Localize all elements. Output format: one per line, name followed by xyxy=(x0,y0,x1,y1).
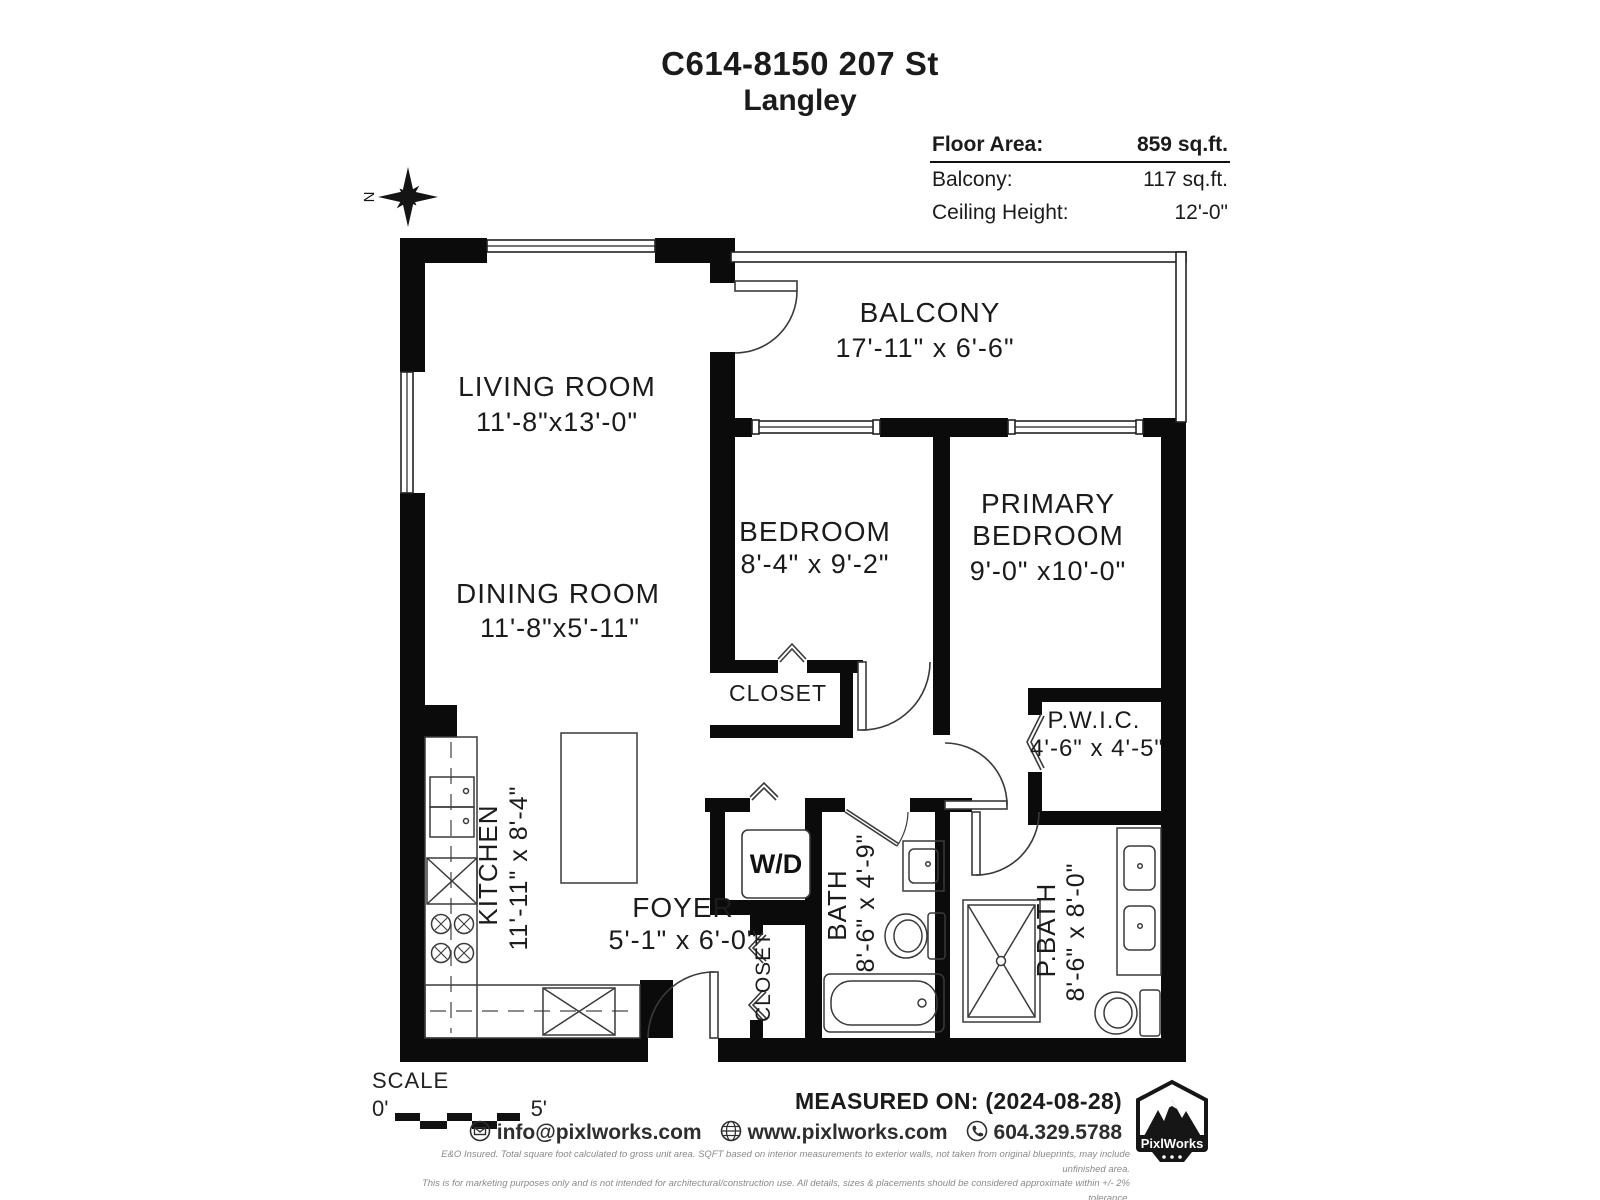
balcony-dims: 17'-11" x 6'-6" xyxy=(835,333,1014,363)
pbath-toilet-icon xyxy=(1095,990,1160,1036)
primary-bedroom-dims: 9'-0" x10'-0" xyxy=(970,556,1127,586)
pbath-dims: 8'-6" x 8'-0" xyxy=(1062,863,1090,1002)
window-left-living xyxy=(401,372,413,493)
logo-text: PixlWorks xyxy=(1141,1136,1204,1151)
windows xyxy=(401,240,1143,493)
shower-icon xyxy=(963,900,1040,1022)
foyer-label: FOYER xyxy=(632,892,733,923)
bathtub-icon xyxy=(824,974,944,1032)
bedroom-closet-label: CLOSET xyxy=(729,680,827,706)
wd-bifold xyxy=(750,783,778,800)
primary-bedroom-label-1: PRIMARY xyxy=(981,488,1115,519)
pwic-label: P.W.I.C. xyxy=(1048,707,1141,734)
window-bedroom xyxy=(752,420,880,434)
living-room-dims: 11'-8"x13'-0" xyxy=(476,407,638,437)
measured-on: MEASURED ON: (2024-08-28) xyxy=(222,1088,1122,1115)
contact-phone: 604.329.5788 xyxy=(966,1120,1122,1145)
bedroom-door xyxy=(858,662,930,730)
contact-website: www.pixlworks.com xyxy=(720,1120,948,1145)
washer-dryer-icon: W/D xyxy=(742,830,810,898)
wd-label: W/D xyxy=(750,849,802,879)
kitchen-dims: 11'-11" x 8'-4" xyxy=(505,785,533,950)
bedroom-closet-bifold xyxy=(778,644,806,662)
sink-icon xyxy=(427,858,477,904)
fridge-icon xyxy=(430,777,474,837)
globe-icon xyxy=(720,1120,742,1142)
balcony-door xyxy=(735,281,797,353)
primary-bedroom-label-2: BEDROOM xyxy=(972,520,1124,551)
pwic-dims: 4'-6" x 4'-5" xyxy=(1030,735,1164,762)
email-icon xyxy=(469,1120,491,1142)
phone-icon xyxy=(966,1120,988,1142)
dining-room-dims: 11'-8"x5'-11" xyxy=(480,613,640,643)
balcony-label: BALCONY xyxy=(860,297,1001,328)
disclaimer-line-1: E&O Insured. Total square foot calculate… xyxy=(410,1148,1130,1177)
dishwasher-icon xyxy=(543,988,615,1035)
window-primary-bedroom xyxy=(1008,420,1143,434)
kitchen-label: KITCHEN xyxy=(473,804,503,925)
foyer-dims: 5'-1" x 6'-0" xyxy=(608,925,757,955)
disclaimer-line-2: This is for marketing purposes only and … xyxy=(410,1177,1130,1200)
compass-north-label: N xyxy=(361,192,378,203)
compass-rose-icon: N xyxy=(361,167,438,227)
foyer-closet-label: CLOSET xyxy=(752,932,775,1022)
bedroom-dims: 8'-4" x 9'-2" xyxy=(740,549,889,579)
floorplan-drawing: N xyxy=(0,0,1600,1200)
bath-label: BATH xyxy=(822,869,852,940)
pixlworks-logo: PixlWorks xyxy=(1130,1078,1215,1183)
bedroom-label: BEDROOM xyxy=(739,516,891,547)
disclaimer: E&O Insured. Total square foot calculate… xyxy=(410,1148,1130,1200)
dining-room-label: DINING ROOM xyxy=(456,578,660,609)
contact-email: info@pixlworks.com xyxy=(469,1120,702,1145)
bath-dims: 8'-6" x 4'-9" xyxy=(852,834,880,973)
pbath-label: P.BATH xyxy=(1031,883,1061,978)
living-room-label: LIVING ROOM xyxy=(458,371,656,402)
floorplan-page: C614-8150 207 St Langley Floor Area: 859… xyxy=(0,0,1600,1200)
window-top-living xyxy=(487,240,655,252)
stove-icon xyxy=(432,915,474,963)
contact-line: info@pixlworks.com www.pixlworks.com 604… xyxy=(469,1120,1122,1145)
measured-on-text: MEASURED ON: (2024-08-28) xyxy=(222,1088,1122,1115)
kitchen-island xyxy=(561,733,637,883)
pbath-vanity-icon xyxy=(1117,828,1161,975)
